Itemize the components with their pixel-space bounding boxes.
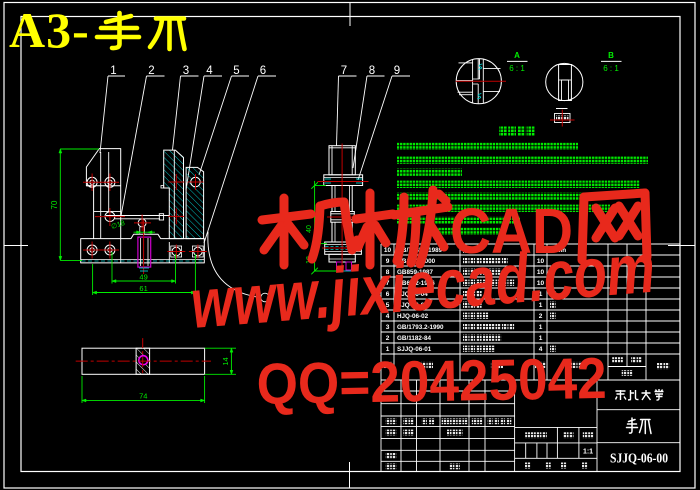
svg-text:74: 74: [139, 392, 147, 401]
svg-text:6 : 1: 6 : 1: [509, 64, 525, 73]
svg-text:61: 61: [139, 284, 147, 293]
svg-text:9: 9: [394, 65, 400, 77]
svg-text:1: 1: [110, 65, 116, 77]
svg-text:2: 2: [386, 335, 390, 342]
svg-text:8: 8: [369, 65, 375, 77]
svg-text:2: 2: [148, 65, 154, 77]
svg-text:A3-: A3-: [9, 2, 90, 58]
svg-text:3: 3: [183, 65, 189, 77]
svg-text:1:1: 1:1: [583, 449, 593, 456]
svg-text:49: 49: [139, 273, 147, 282]
svg-text:6: 6: [260, 65, 266, 77]
svg-text:1: 1: [539, 335, 543, 342]
svg-text:7: 7: [341, 65, 347, 77]
svg-text:40: 40: [306, 225, 313, 233]
svg-text:5: 5: [233, 65, 239, 77]
svg-text:70: 70: [50, 200, 59, 209]
svg-text:B: B: [608, 51, 614, 60]
svg-text:1: 1: [539, 324, 543, 331]
svg-text:A: A: [514, 51, 520, 60]
svg-text:QQ=20425042: QQ=20425042: [256, 346, 607, 417]
svg-text:GB/1182-84: GB/1182-84: [397, 335, 431, 342]
svg-text:4: 4: [206, 65, 213, 77]
svg-text:SJJQ-06-00: SJJQ-06-00: [610, 452, 668, 467]
svg-text:6 : 1: 6 : 1: [603, 64, 619, 73]
svg-text:14: 14: [221, 357, 230, 365]
